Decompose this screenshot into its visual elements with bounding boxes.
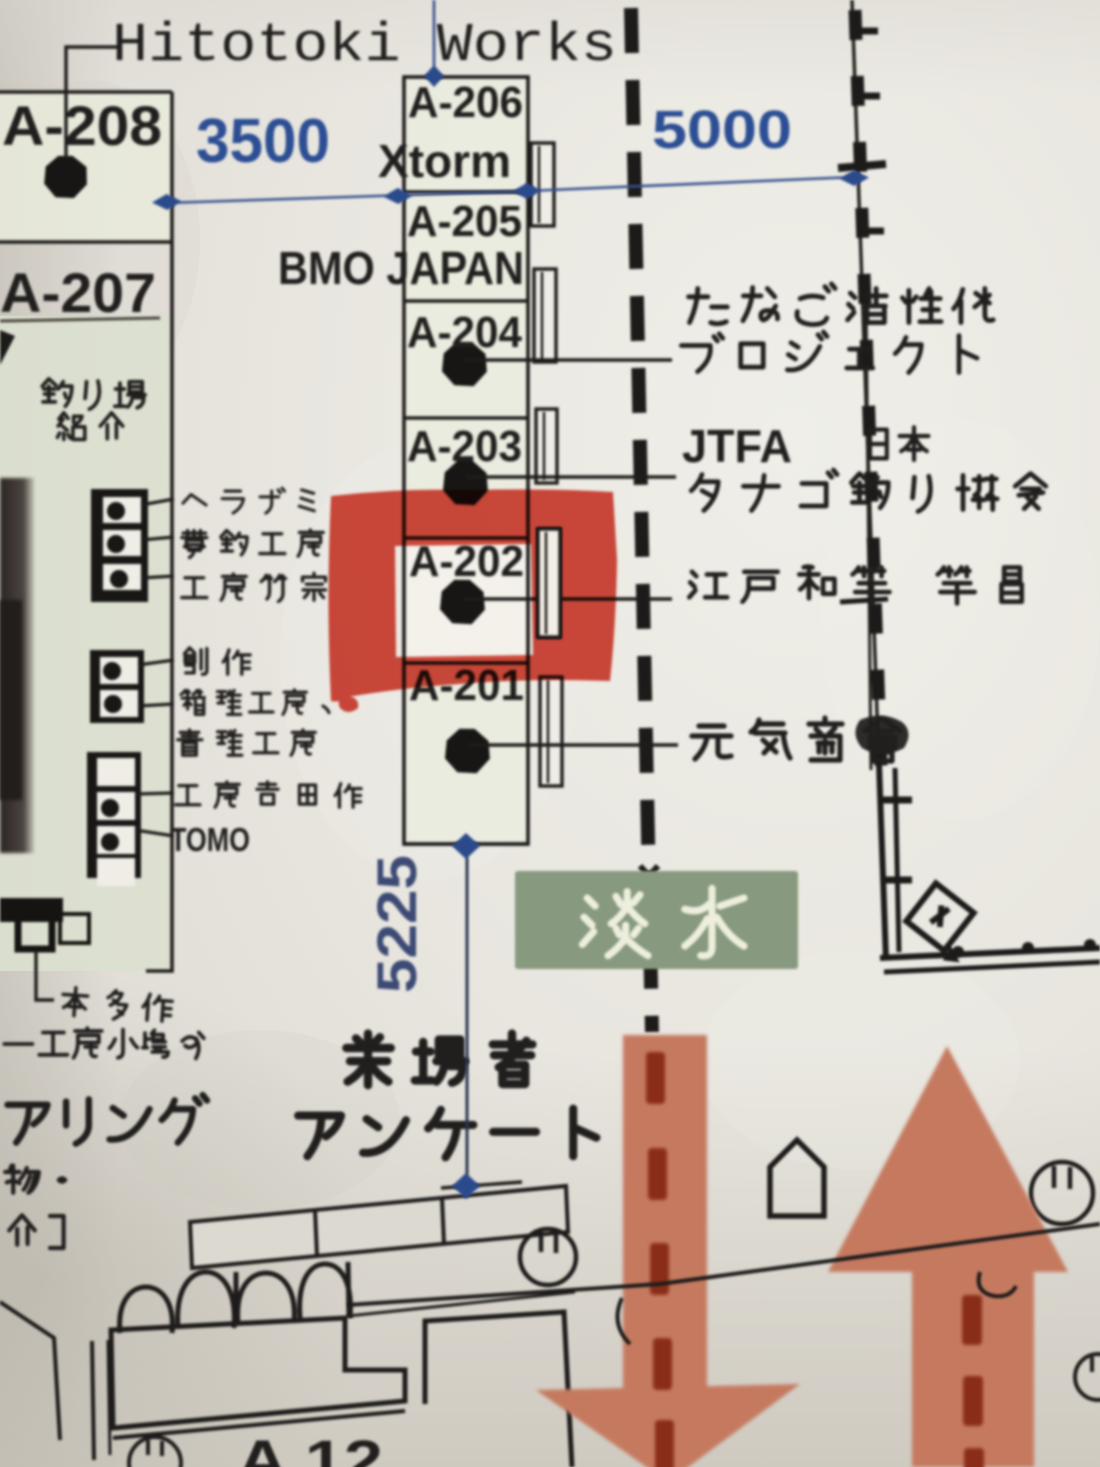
- svg-text:A-206: A-206: [408, 78, 523, 127]
- svg-text:3500: 3500: [196, 107, 330, 176]
- svg-text:TOMO: TOMO: [170, 821, 250, 858]
- svg-text:Xtorm: Xtorm: [378, 135, 511, 187]
- svg-text:JTFA: JTFA: [682, 420, 792, 472]
- svg-text:5225: 5225: [365, 855, 428, 993]
- svg-text:A 12: A 12: [237, 1429, 383, 1467]
- svg-text:A-207: A-207: [0, 261, 156, 324]
- svg-text:A-208: A-208: [2, 94, 162, 157]
- svg-text:Hitotoki Works: Hitotoki Works: [112, 14, 617, 77]
- svg-text:BMO JAPAN: BMO JAPAN: [278, 242, 524, 294]
- svg-text:A-204: A-204: [407, 308, 523, 357]
- svg-text:A-203: A-203: [407, 422, 522, 471]
- svg-text:5000: 5000: [652, 100, 792, 160]
- svg-text:A-205: A-205: [407, 197, 522, 246]
